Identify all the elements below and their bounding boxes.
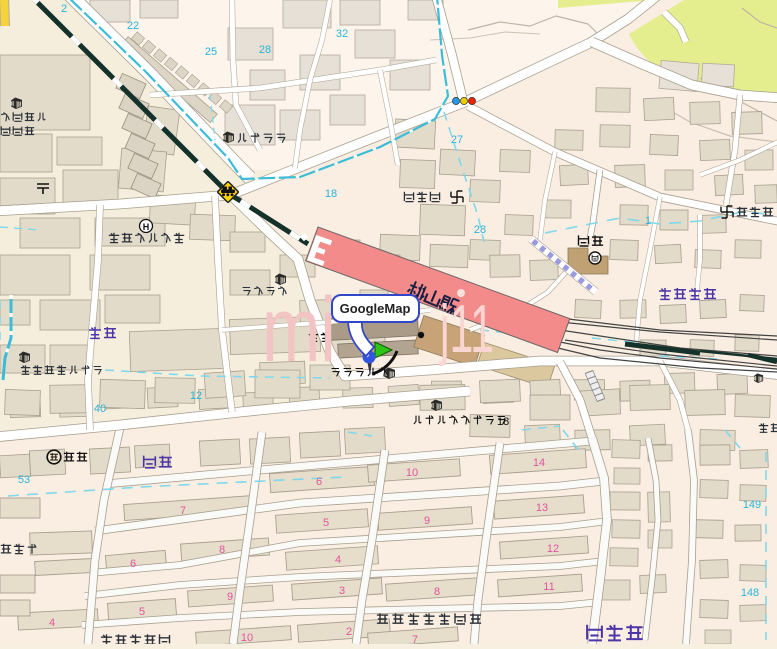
svg-text:25: 25 — [205, 46, 217, 58]
svg-text:27: 27 — [451, 134, 463, 146]
svg-text:4: 4 — [335, 554, 341, 566]
svg-text:18: 18 — [497, 416, 509, 428]
svg-text:2: 2 — [346, 626, 352, 638]
svg-text:22: 22 — [127, 20, 139, 32]
svg-text:9: 9 — [424, 515, 430, 527]
svg-text:28: 28 — [259, 44, 271, 56]
svg-text:2: 2 — [61, 3, 67, 15]
svg-text:5: 5 — [323, 517, 329, 529]
svg-text:28: 28 — [474, 224, 486, 236]
svg-text:mi: mi — [262, 279, 336, 381]
svg-text:10: 10 — [406, 467, 418, 479]
svg-text:12: 12 — [190, 390, 202, 402]
svg-text:9: 9 — [227, 591, 233, 603]
svg-text:8: 8 — [434, 586, 440, 598]
svg-text:53: 53 — [18, 474, 30, 486]
svg-text:1: 1 — [645, 215, 651, 227]
svg-text:149: 149 — [743, 499, 761, 511]
svg-text:5: 5 — [139, 606, 145, 618]
svg-text:40: 40 — [94, 403, 106, 415]
svg-text:32: 32 — [336, 28, 348, 40]
svg-text:14: 14 — [533, 457, 545, 469]
svg-text:10: 10 — [241, 632, 253, 644]
svg-text:H: H — [143, 222, 150, 232]
svg-text:7: 7 — [180, 505, 186, 517]
svg-text:12: 12 — [547, 543, 559, 555]
svg-text:GoogleMap: GoogleMap — [340, 301, 411, 316]
svg-text:18: 18 — [325, 188, 337, 200]
svg-text:3: 3 — [339, 585, 345, 597]
svg-text:148: 148 — [741, 587, 759, 599]
svg-text:7: 7 — [412, 634, 418, 644]
svg-text:6: 6 — [316, 476, 322, 488]
svg-text:j11: j11 — [439, 291, 494, 367]
svg-text:11: 11 — [543, 581, 554, 593]
svg-text:13: 13 — [536, 502, 548, 514]
svg-text:4: 4 — [49, 617, 55, 629]
svg-text:6: 6 — [130, 558, 136, 570]
svg-text:8: 8 — [219, 544, 225, 556]
